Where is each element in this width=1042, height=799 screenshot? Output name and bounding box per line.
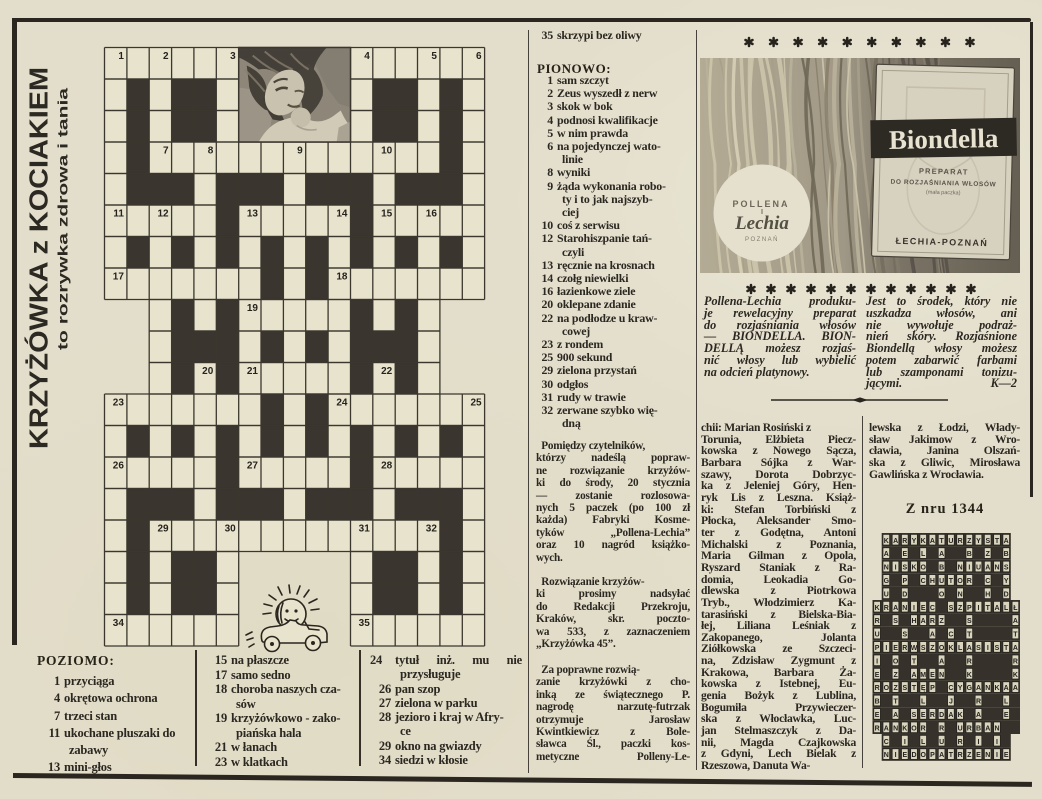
svg-text:O: O (920, 565, 926, 572)
svg-text:U: U (948, 538, 953, 545)
svg-text:A: A (939, 752, 944, 759)
svg-text:E: E (902, 551, 907, 558)
svg-text:S: S (949, 605, 954, 612)
svg-text:C: C (948, 632, 953, 639)
svg-text:N: N (902, 605, 907, 612)
svg-text:E: E (1004, 712, 1009, 719)
svg-text:A: A (1004, 685, 1009, 692)
svg-text:N: N (893, 725, 898, 732)
svg-text:Z: Z (958, 605, 963, 612)
svg-text:B: B (939, 565, 944, 572)
svg-text:H: H (911, 618, 916, 625)
svg-text:U: U (958, 725, 963, 732)
svg-text:Z: Z (986, 551, 991, 558)
svg-text:N: N (985, 752, 990, 759)
svg-text:T: T (986, 605, 991, 612)
svg-text:R: R (875, 618, 880, 625)
svg-text:Ł: Ł (1013, 605, 1018, 612)
svg-text:E: E (1004, 752, 1009, 759)
svg-text:S: S (976, 645, 981, 652)
svg-text:Z: Z (930, 645, 935, 652)
svg-text:Biondella: Biondella (889, 123, 1000, 155)
svg-text:P: P (967, 605, 972, 612)
svg-text:I: I (913, 605, 915, 612)
svg-text:S: S (985, 538, 990, 545)
svg-text:T: T (1004, 645, 1009, 652)
svg-text:K: K (921, 538, 926, 545)
svg-text:G: G (967, 685, 973, 692)
svg-text:A: A (985, 565, 990, 572)
svg-text:P: P (902, 578, 907, 585)
svg-text:E: E (930, 672, 935, 679)
svg-text:A: A (921, 618, 926, 625)
svg-text:R: R (930, 618, 935, 625)
svg-text:A: A (1013, 618, 1018, 625)
svg-text:B: B (976, 725, 981, 732)
svg-text:R: R (967, 725, 972, 732)
svg-text:R: R (930, 712, 935, 719)
svg-text:T: T (949, 578, 954, 585)
svg-text:C: C (884, 739, 889, 746)
svg-text:I: I (996, 752, 998, 759)
svg-text:O: O (920, 752, 926, 759)
svg-text:E: E (875, 672, 880, 679)
svg-text:I: I (895, 752, 897, 759)
svg-text:K: K (967, 672, 972, 679)
svg-text:O: O (884, 685, 890, 692)
svg-text:L: L (1004, 605, 1009, 612)
svg-text:R: R (958, 752, 963, 759)
svg-text:R: R (921, 725, 926, 732)
svg-text:K: K (884, 538, 889, 545)
svg-text:A: A (884, 725, 889, 732)
svg-text:T: T (1013, 632, 1018, 639)
svg-text:A: A (985, 725, 990, 732)
svg-text:A: A (1013, 645, 1018, 652)
svg-text:O: O (939, 591, 945, 598)
svg-text:O: O (911, 725, 917, 732)
svg-text:I: I (895, 565, 897, 572)
svg-text:K: K (1013, 672, 1018, 679)
svg-text:A: A (893, 605, 898, 612)
svg-text:B: B (875, 699, 880, 706)
svg-text:P: P (930, 685, 935, 692)
svg-text:S: S (902, 685, 907, 692)
svg-text:N: N (884, 565, 889, 572)
svg-text:A: A (930, 632, 935, 639)
svg-text:K: K (902, 725, 907, 732)
svg-text:I: I (904, 739, 906, 746)
svg-text:P: P (930, 752, 935, 759)
svg-text:C: C (985, 578, 990, 585)
svg-text:T: T (949, 752, 954, 759)
svg-text:S: S (902, 565, 907, 572)
svg-text:M: M (920, 672, 926, 679)
svg-text:E: E (976, 752, 981, 759)
svg-text:N: N (994, 725, 999, 732)
svg-text:I: I (987, 645, 989, 652)
svg-text:N: N (939, 672, 944, 679)
svg-text:R: R (976, 699, 981, 706)
svg-text:C: C (921, 578, 926, 585)
svg-text:Lechia: Lechia (734, 213, 789, 234)
svg-text:POZNAŃ: POZNAŃ (745, 236, 779, 243)
svg-text:B: B (967, 551, 972, 558)
svg-text:E: E (902, 752, 907, 759)
svg-text:L: L (958, 645, 963, 652)
svg-text:J: J (949, 699, 953, 706)
svg-text:A: A (939, 551, 944, 558)
svg-text:N: N (985, 685, 990, 692)
svg-text:Y: Y (1004, 578, 1009, 585)
svg-text:L: L (921, 699, 926, 706)
svg-text:O: O (893, 658, 899, 665)
svg-text:I: I (968, 565, 970, 572)
svg-text:R: R (902, 538, 907, 545)
svg-text:A: A (948, 712, 953, 719)
svg-text:D: D (1004, 591, 1009, 598)
svg-text:R: R (875, 685, 880, 692)
svg-text:E: E (893, 645, 898, 652)
svg-text:D: D (902, 591, 907, 598)
svg-text:U: U (884, 591, 889, 598)
svg-text:T: T (939, 538, 944, 545)
svg-text:S: S (967, 618, 972, 625)
svg-text:I: I (876, 658, 878, 665)
svg-text:U: U (939, 578, 944, 585)
svg-text:K: K (911, 565, 916, 572)
svg-text:W: W (911, 645, 918, 652)
svg-text:D: D (911, 752, 916, 759)
svg-text:T: T (893, 699, 898, 706)
svg-text:A: A (884, 551, 889, 558)
svg-text:O: O (957, 578, 963, 585)
svg-text:I: I (978, 605, 980, 612)
svg-text:G: G (884, 578, 890, 585)
svg-text:K: K (948, 645, 953, 652)
svg-text:S: S (912, 712, 917, 719)
svg-text:T: T (912, 658, 917, 665)
svg-text:E: E (921, 712, 926, 719)
svg-text:K: K (958, 712, 963, 719)
svg-text:Y: Y (976, 538, 981, 545)
svg-text:U: U (875, 632, 880, 639)
svg-text:A: A (893, 538, 898, 545)
svg-text:A: A (893, 712, 898, 719)
svg-text:Z: Z (893, 672, 898, 679)
svg-text:S: S (902, 632, 907, 639)
svg-text:S: S (995, 645, 1000, 652)
svg-text:A: A (1013, 685, 1018, 692)
svg-text:Z: Z (967, 538, 972, 545)
svg-text:R: R (875, 725, 880, 732)
svg-text:R: R (1013, 658, 1018, 665)
svg-text:S: S (1004, 565, 1009, 572)
svg-text:E: E (875, 712, 880, 719)
svg-text:T: T (967, 632, 972, 639)
svg-text:R: R (939, 725, 944, 732)
svg-text:C: C (930, 605, 935, 612)
svg-text:A: A (930, 538, 935, 545)
svg-text:C: C (948, 685, 953, 692)
svg-text:A: A (976, 712, 981, 719)
svg-text:P: P (875, 645, 880, 652)
svg-text:R: R (902, 645, 907, 652)
svg-text:R: R (958, 739, 963, 746)
svg-text:N: N (958, 591, 963, 598)
svg-text:N: N (958, 565, 963, 572)
svg-text:K: K (875, 605, 880, 612)
svg-text:I: I (996, 739, 998, 746)
svg-text:L: L (1004, 699, 1009, 706)
svg-text:I: I (978, 739, 980, 746)
svg-text:Ę: Ę (921, 685, 926, 692)
svg-text:A: A (911, 672, 916, 679)
svg-text:N: N (994, 565, 999, 572)
svg-text:A: A (1004, 538, 1009, 545)
svg-text:N: N (884, 752, 889, 759)
svg-text:H: H (985, 591, 990, 598)
svg-text:Y: Y (912, 538, 917, 545)
svg-text:A: A (976, 685, 981, 692)
svg-text:R: R (958, 538, 963, 545)
svg-text:A: A (967, 645, 972, 652)
svg-text:U: U (976, 565, 981, 572)
svg-text:H: H (930, 578, 935, 585)
svg-text:T: T (995, 538, 1000, 545)
svg-text:T: T (912, 685, 917, 692)
svg-text:B: B (1004, 551, 1009, 558)
svg-text:Y: Y (958, 685, 963, 692)
svg-text:R: R (967, 578, 972, 585)
svg-text:D: D (939, 712, 944, 719)
svg-text:PREPARAT: PREPARAT (919, 166, 969, 176)
svg-text:Z: Z (939, 618, 944, 625)
svg-text:S: S (893, 618, 898, 625)
svg-text:A: A (994, 605, 999, 612)
svg-text:POLLENA: POLLENA (732, 199, 789, 209)
svg-text:U: U (939, 739, 944, 746)
svg-text:R: R (967, 658, 972, 665)
svg-text:K: K (994, 685, 999, 692)
svg-text:(mała paczka): (mała paczka) (926, 190, 961, 197)
svg-text:Z: Z (893, 685, 898, 692)
svg-text:I: I (885, 645, 887, 652)
svg-text:L: L (921, 739, 926, 746)
svg-text:Z: Z (967, 752, 972, 759)
svg-text:A: A (939, 658, 944, 665)
svg-text:O: O (939, 645, 945, 652)
svg-text:R: R (884, 605, 889, 612)
svg-text:S: S (921, 645, 926, 652)
svg-text:L: L (921, 551, 926, 558)
svg-text:E: E (921, 605, 926, 612)
